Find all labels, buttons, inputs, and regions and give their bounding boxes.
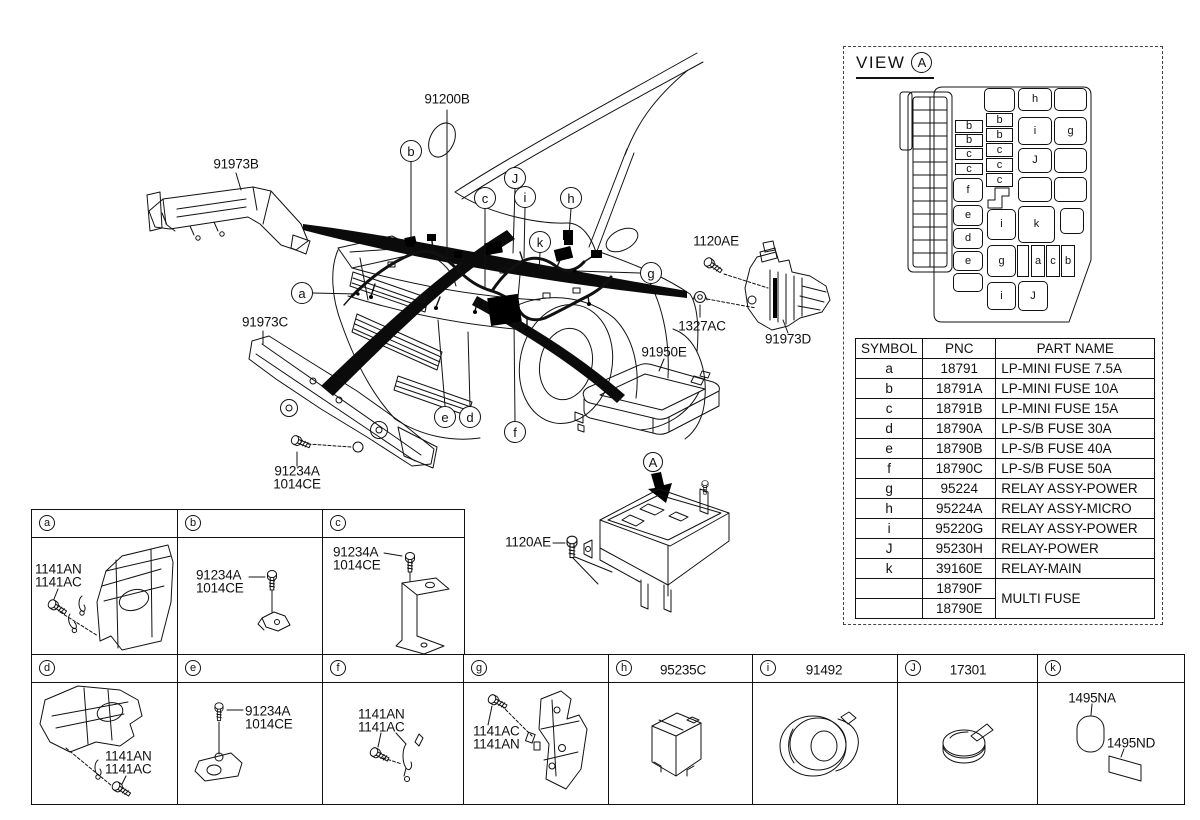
table-row: 18790FMULTI FUSE <box>856 579 1155 599</box>
cell-symbol: c <box>856 399 923 419</box>
cell-pnc: 18791 <box>923 359 996 379</box>
grid-cell-letter-c: c <box>330 515 346 531</box>
part-label-1120AE: 1120AE <box>505 535 551 550</box>
cell-part-name: RELAY ASSY-POWER <box>996 479 1155 499</box>
part-label-91973D: 91973D <box>765 332 811 347</box>
table-row: b18791ALP-MINI FUSE 10A <box>856 379 1155 399</box>
fuse-slot-c: c <box>955 163 983 175</box>
table-row: c18791BLP-MINI FUSE 15A <box>856 399 1155 419</box>
cell-part-name: RELAY ASSY-POWER <box>996 519 1155 539</box>
callout-A: A <box>643 452 663 472</box>
fuse-slot-e: e <box>953 251 983 271</box>
table-row: h95224ARELAY ASSY-MICRO <box>856 499 1155 519</box>
grid-cell-header: d <box>32 655 177 683</box>
cell-part-name: MULTI FUSE <box>996 579 1155 619</box>
fuse-slot-g: g <box>1054 117 1087 145</box>
part-label-1495ND: 1495ND <box>1107 736 1155 751</box>
part-label-91950E: 91950E <box>641 345 686 360</box>
fuse-slot-c: c <box>1046 245 1060 277</box>
cell-part-name: LP-S/B FUSE 30A <box>996 419 1155 439</box>
cell-symbol: g <box>856 479 923 499</box>
cell-pnc: 18790B <box>923 439 996 459</box>
part-label-1014CE: 1014CE <box>196 581 244 596</box>
parts-grid-row: defghiJk <box>31 654 1185 805</box>
cell-pnc: 18791B <box>923 399 996 419</box>
part-label-91492: 91492 <box>806 663 843 678</box>
view-a-title-balloon: A <box>911 52 932 73</box>
cell-part-name: RELAY-POWER <box>996 539 1155 559</box>
fusebox-lower-sketch <box>553 481 729 612</box>
part-label-1120AE: 1120AE <box>693 234 739 249</box>
nut-1327AC-sketch <box>693 292 707 303</box>
grid-cell-letter-g: g <box>471 660 487 676</box>
grid-cell-letter-k: k <box>1045 660 1061 676</box>
part-91973B-sketch <box>147 187 310 254</box>
cell-part-name: LP-S/B FUSE 40A <box>996 439 1155 459</box>
part-label-1014CE: 1014CE <box>273 477 321 492</box>
cell-pnc: 95224A <box>923 499 996 519</box>
grid-cell-c: c <box>323 510 464 654</box>
grid-cell-header: g <box>464 655 608 683</box>
fuse-slot-blank <box>1017 245 1029 277</box>
fuse-slot-i: i <box>1018 117 1052 145</box>
fuse-slot-k: k <box>1018 206 1055 243</box>
cell-symbol <box>856 579 923 599</box>
cell-pnc: 18790C <box>923 459 996 479</box>
cell-pnc: 18790E <box>923 599 996 619</box>
part-label-1014CE: 1014CE <box>333 558 381 573</box>
cell-pnc: 95230H <box>923 539 996 559</box>
part-91973C-sketch <box>249 336 437 468</box>
table-row: d18790ALP-S/B FUSE 30A <box>856 419 1155 439</box>
grid-cell-letter-J: J <box>905 660 921 676</box>
fusebox-cover-91950E-sketch <box>575 359 719 434</box>
fuse-slot-i: i <box>987 209 1016 240</box>
cell-pnc: 95220G <box>923 519 996 539</box>
grid-cell-letter-f: f <box>330 660 346 676</box>
col-pnc: PNC <box>923 339 996 359</box>
fuse-slot-blank <box>1018 177 1052 202</box>
grid-cell-header: f <box>323 655 463 683</box>
table-row: i95220GRELAY ASSY-POWER <box>856 519 1155 539</box>
callout-i: i <box>514 186 536 208</box>
part-label-1141AC: 1141AC <box>35 575 82 590</box>
callout-d: d <box>459 406 481 428</box>
part-label-1014CE: 1014CE <box>245 717 293 732</box>
table-row: e18790BLP-S/B FUSE 40A <box>856 439 1155 459</box>
col-part-name: PART NAME <box>996 339 1155 359</box>
grid-cell-letter-d: d <box>39 660 55 676</box>
cell-part-name: LP-MINI FUSE 7.5A <box>996 359 1155 379</box>
fuse-slot-c: c <box>955 148 983 160</box>
fuse-slot-g: g <box>987 245 1016 277</box>
fuse-slot-h: h <box>1018 88 1052 111</box>
grid-cell-header: c <box>323 510 464 538</box>
fuse-slot-d: d <box>953 228 983 249</box>
grid-cell-header: b <box>178 510 322 538</box>
cell-symbol: h <box>856 499 923 519</box>
callout-e: e <box>434 406 456 428</box>
cell-pnc: 18790A <box>923 419 996 439</box>
cell-part-name: LP-MINI FUSE 15A <box>996 399 1155 419</box>
part-label-1141AC: 1141AC <box>358 720 405 735</box>
table-row: J95230HRELAY-POWER <box>856 539 1155 559</box>
part-label-1141AN: 1141AN <box>473 737 520 752</box>
cell-pnc: 18790F <box>923 579 996 599</box>
part-label-91973B: 91973B <box>213 157 258 172</box>
grid-cell-letter-i: i <box>760 660 776 676</box>
parts-diagram-page: VIEW A SYMBOL PNC PART NAME a18791LP-MIN… <box>0 0 1200 820</box>
grid-cell-letter-a: a <box>39 515 55 531</box>
table-row: g95224RELAY ASSY-POWER <box>856 479 1155 499</box>
cell-pnc: 18791A <box>923 379 996 399</box>
fuse-slot-f: f <box>953 178 983 202</box>
grid-cell-header: e <box>178 655 322 683</box>
fuse-slot-blank <box>1060 208 1084 234</box>
fuse-slot-J: J <box>1018 281 1048 311</box>
view-a-title-text: VIEW <box>856 53 905 73</box>
callout-b: b <box>400 140 422 162</box>
cell-pnc: 39160E <box>923 559 996 579</box>
grid-cell-d: d <box>32 655 178 804</box>
part-label-91200B: 91200B <box>424 92 469 107</box>
symbol-table: SYMBOL PNC PART NAME a18791LP-MINI FUSE … <box>855 338 1155 619</box>
cell-symbol: f <box>856 459 923 479</box>
part-label-17301: 17301 <box>950 663 987 678</box>
fuse-slot-blank <box>1054 177 1087 202</box>
grid-cell-k: k <box>1038 655 1184 804</box>
cell-symbol: k <box>856 559 923 579</box>
cell-pnc: 95224 <box>923 479 996 499</box>
part-label-91973C: 91973C <box>242 315 288 330</box>
cell-symbol <box>856 599 923 619</box>
fuse-slot-c: c <box>986 143 1013 157</box>
table-row: f18790CLP-S/B FUSE 50A <box>856 459 1155 479</box>
cell-part-name: LP-MINI FUSE 10A <box>996 379 1155 399</box>
cell-symbol: d <box>856 419 923 439</box>
part-label-1495NA: 1495NA <box>1068 691 1116 706</box>
cell-symbol: J <box>856 539 923 559</box>
grid-cell-header: k <box>1038 655 1184 683</box>
fuse-slot-c: c <box>986 173 1013 187</box>
parts-grid-row: abc <box>31 509 465 655</box>
cell-symbol: b <box>856 379 923 399</box>
fuse-slot-blank <box>984 88 1015 112</box>
cell-part-name: LP-S/B FUSE 50A <box>996 459 1155 479</box>
col-symbol: SYMBOL <box>856 339 923 359</box>
table-header-row: SYMBOL PNC PART NAME <box>856 339 1155 359</box>
part-label-95235C: 95235C <box>660 663 706 678</box>
fuse-slot-a: a <box>1031 245 1045 277</box>
callout-g: g <box>640 262 662 284</box>
fuse-slot-b: b <box>955 120 983 133</box>
fuse-slot-b: b <box>986 113 1013 127</box>
fuse-slot-J: J <box>1018 148 1052 173</box>
grid-cell-letter-h: h <box>616 660 632 676</box>
callout-a: a <box>291 282 313 304</box>
fuse-slot-b: b <box>955 134 983 147</box>
table-row: a18791LP-MINI FUSE 7.5A <box>856 359 1155 379</box>
fuse-slot-b: b <box>1061 245 1075 277</box>
fuse-slot-e: e <box>953 205 983 226</box>
table-row: k39160ERELAY-MAIN <box>856 559 1155 579</box>
callout-c: c <box>474 187 496 209</box>
view-a-title: VIEW A <box>856 52 934 79</box>
fuse-slot-blank <box>953 273 983 292</box>
grid-cell-letter-e: e <box>185 660 201 676</box>
part-label-1141AC: 1141AC <box>105 762 152 777</box>
cell-part-name: RELAY-MAIN <box>996 559 1155 579</box>
callout-k: k <box>529 231 551 253</box>
cell-symbol: a <box>856 359 923 379</box>
grid-cell-header: a <box>32 510 177 538</box>
cell-symbol: e <box>856 439 923 459</box>
fuse-slot-i: i <box>987 282 1016 310</box>
fuse-slot-blank <box>1054 148 1087 173</box>
callout-h: h <box>560 187 582 209</box>
cell-symbol: i <box>856 519 923 539</box>
fuse-slot-c: c <box>986 158 1013 172</box>
part-label-1327AC: 1327AC <box>678 319 726 334</box>
callout-f: f <box>504 421 526 443</box>
fuse-slot-blank <box>1054 88 1087 111</box>
grid-cell-letter-b: b <box>185 515 201 531</box>
cell-part-name: RELAY ASSY-MICRO <box>996 499 1155 519</box>
fuse-slot-b: b <box>986 128 1013 142</box>
